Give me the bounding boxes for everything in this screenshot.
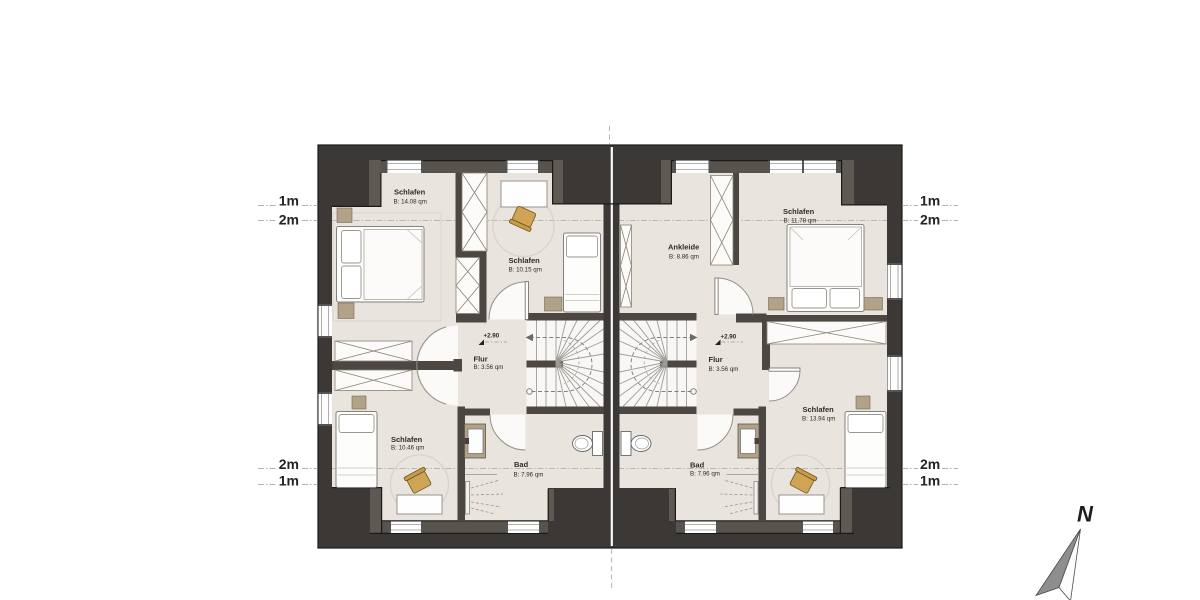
- svg-text:Bad: Bad: [690, 461, 705, 470]
- svg-text:Bad: Bad: [514, 460, 529, 469]
- svg-text:1m: 1m: [279, 473, 299, 489]
- svg-text:2m: 2m: [920, 456, 940, 472]
- svg-text:1m: 1m: [920, 473, 940, 489]
- svg-text:+2.90: +2.90: [721, 333, 737, 340]
- svg-text:1m: 1m: [920, 193, 940, 209]
- svg-text:Flur: Flur: [474, 355, 488, 364]
- svg-text:Schlafen: Schlafen: [391, 435, 423, 444]
- svg-text:B: 3.56 qm: B: 3.56 qm: [474, 364, 504, 371]
- svg-text:2m: 2m: [279, 212, 299, 228]
- svg-text:B: 7.96 qm: B: 7.96 qm: [690, 471, 720, 478]
- svg-text:B: 10.46 qm: B: 10.46 qm: [391, 445, 424, 452]
- svg-text:B: 8.86 qm: B: 8.86 qm: [669, 254, 699, 261]
- svg-text:B: 14.08 qm: B: 14.08 qm: [394, 199, 427, 206]
- svg-text:N: N: [1077, 502, 1094, 527]
- svg-text:Schlafen: Schlafen: [803, 405, 835, 414]
- svg-text:Schlafen: Schlafen: [783, 207, 815, 216]
- svg-text:Flur: Flur: [709, 355, 723, 364]
- svg-text:2m: 2m: [920, 212, 940, 228]
- svg-text:1m: 1m: [279, 193, 299, 209]
- svg-text:B: 11.78 qm: B: 11.78 qm: [784, 218, 817, 225]
- svg-text:B: 13.94 qm: B: 13.94 qm: [802, 416, 835, 423]
- svg-text:Schlafen: Schlafen: [509, 256, 541, 265]
- svg-text:B: 3.56 qm: B: 3.56 qm: [709, 366, 739, 373]
- svg-text:B: 7.96 qm: B: 7.96 qm: [514, 472, 544, 479]
- svg-text:Ankleide: Ankleide: [668, 243, 699, 252]
- svg-text:2m: 2m: [279, 456, 299, 472]
- svg-text:B: 10.15 qm: B: 10.15 qm: [509, 267, 542, 274]
- svg-text:+2.90: +2.90: [484, 332, 500, 339]
- svg-text:Schlafen: Schlafen: [394, 188, 426, 197]
